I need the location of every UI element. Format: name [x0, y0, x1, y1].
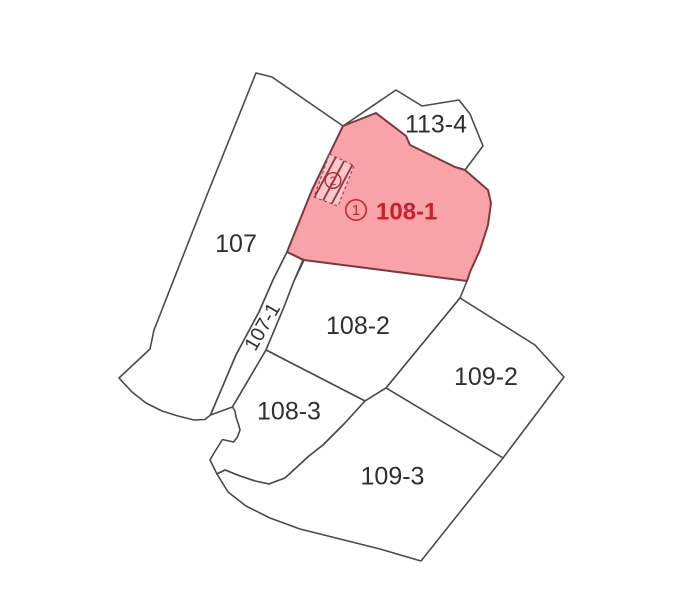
svg-text:108-2: 108-2 [326, 312, 390, 340]
svg-text:108-3: 108-3 [257, 398, 321, 426]
svg-text:107: 107 [215, 230, 257, 258]
svg-text:109-3: 109-3 [361, 463, 425, 491]
svg-text:113-4: 113-4 [405, 111, 467, 139]
svg-text:109-2: 109-2 [454, 363, 518, 391]
svg-text:108-1: 108-1 [376, 199, 437, 226]
svg-text:2: 2 [330, 174, 337, 188]
svg-text:1: 1 [352, 203, 360, 219]
